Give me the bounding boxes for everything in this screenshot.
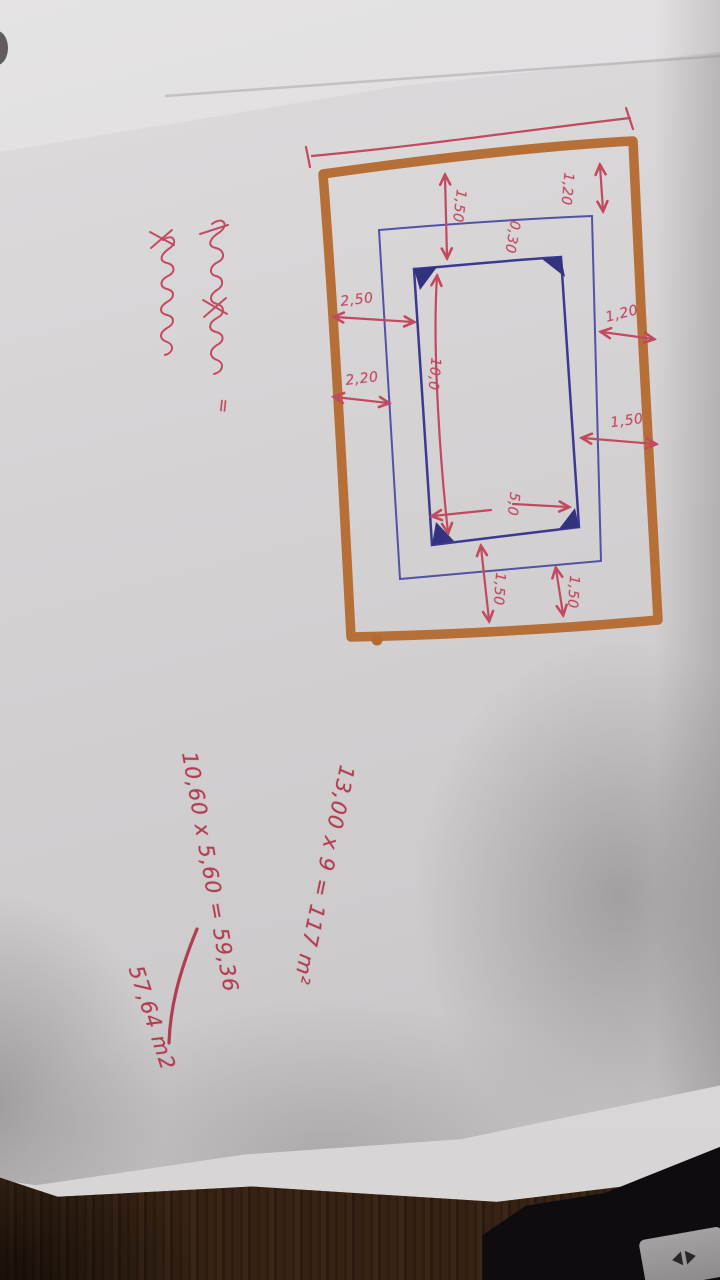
sum-underline (169, 929, 197, 1043)
device-arrow-right-icon (685, 1249, 697, 1265)
cursive-note-line-2-x2 (151, 230, 172, 248)
cursive-note (150, 221, 228, 374)
dim-label-pool-width: 5,0 (504, 491, 523, 517)
arrow-bottom-left (481, 547, 489, 620)
device-arrow-left-icon (671, 1251, 683, 1267)
outer-brown-rectangle (323, 141, 658, 637)
arrow-bottom-right (556, 569, 563, 614)
sketch-drawing (0, 0, 720, 1280)
arrow-pool-length (436, 277, 448, 532)
dimension-lines (306, 108, 655, 620)
photo-of-sketch: 1,50 1,20 0,30 2,50 2,20 10,0 1,20 1,50 … (0, 0, 720, 1280)
arrow-top-right (600, 166, 603, 210)
equals-sign: = (212, 397, 235, 415)
cursive-note-line-2 (161, 237, 174, 355)
dim-label-bottom-left: 1,50 (490, 572, 508, 606)
pool-corner-wedges (414, 257, 579, 545)
dim-label-bottom-right: 1,50 (564, 575, 582, 609)
overall-length-tick-left (306, 147, 310, 167)
overall-length-line (312, 118, 630, 156)
arrow-pool-width-left (433, 510, 491, 516)
dim-label-top-right: 1,20 (558, 172, 577, 206)
dim-label-pool-length: 10,0 (425, 357, 444, 391)
arrow-top-center (445, 176, 447, 257)
arrow-left-to-pool (335, 317, 413, 322)
cursive-note-line-1 (210, 221, 224, 374)
inner-blue-rectangle-pool (414, 257, 579, 545)
arrow-pool-width-right (513, 504, 568, 507)
marker-dot (372, 635, 383, 646)
paper-fold-highlight (0, 0, 720, 152)
